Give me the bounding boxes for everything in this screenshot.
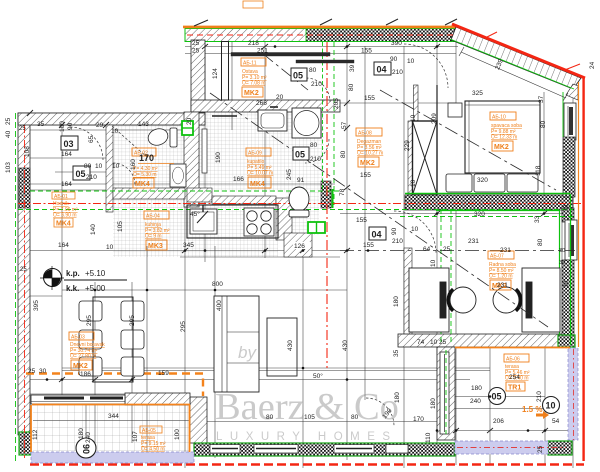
svg-text:112: 112 (32, 429, 39, 440)
svg-text:25: 25 (443, 246, 451, 253)
svg-text:229: 229 (404, 140, 411, 151)
svg-text:35: 35 (37, 121, 45, 128)
svg-text:Baerz & Co: Baerz & Co (215, 386, 399, 428)
svg-text:155: 155 (356, 217, 367, 224)
svg-text:180: 180 (394, 392, 401, 403)
svg-text:+5.10: +5.10 (85, 269, 106, 278)
svg-text:206: 206 (493, 418, 504, 425)
svg-text:АБ-03: АБ-03 (71, 335, 85, 341)
svg-text:80: 80 (340, 150, 347, 158)
svg-text:10: 10 (430, 339, 438, 346)
svg-text:344: 344 (108, 413, 119, 420)
svg-text:390: 390 (391, 40, 402, 47)
svg-text:80: 80 (351, 414, 359, 421)
svg-text:105: 105 (304, 414, 315, 421)
svg-text:100: 100 (59, 121, 66, 132)
svg-text:210: 210 (310, 156, 321, 163)
svg-text:30: 30 (563, 280, 570, 288)
svg-text:155: 155 (364, 95, 375, 102)
svg-text:100: 100 (174, 429, 181, 440)
svg-text:O= 10.07 m: O= 10.07 m (247, 171, 273, 177)
svg-text:АБ-05: АБ-05 (142, 428, 156, 434)
svg-text:АБ-09: АБ-09 (248, 151, 262, 157)
svg-text:MK2: MK2 (360, 160, 375, 167)
svg-text:25: 25 (537, 445, 544, 453)
svg-text:209: 209 (431, 113, 438, 124)
svg-text:45°: 45° (190, 210, 200, 218)
svg-text:04: 04 (372, 230, 382, 240)
svg-text:103: 103 (5, 162, 12, 173)
svg-text:MK2: MK2 (244, 90, 259, 97)
svg-text:80: 80 (540, 120, 547, 128)
svg-text:54: 54 (552, 418, 560, 425)
svg-text:25: 25 (192, 48, 200, 55)
svg-text:MK4: MK4 (250, 181, 265, 188)
svg-text:90: 90 (391, 227, 398, 235)
svg-text:400: 400 (216, 300, 223, 311)
svg-text:10: 10 (106, 244, 114, 251)
svg-text:25: 25 (439, 339, 447, 346)
svg-text:35: 35 (393, 349, 400, 357)
svg-text:04: 04 (377, 65, 387, 75)
svg-text:30: 30 (563, 204, 570, 212)
svg-text:430: 430 (287, 340, 294, 351)
svg-text:TR1: TR1 (508, 385, 521, 392)
svg-text:180: 180 (78, 428, 85, 439)
svg-text:05: 05 (293, 71, 303, 81)
svg-text:30: 30 (559, 248, 565, 254)
svg-text:АБ-06: АБ-06 (506, 357, 520, 363)
svg-text:80: 80 (84, 163, 92, 170)
svg-text:143: 143 (138, 121, 149, 128)
svg-text:by: by (238, 343, 257, 362)
svg-text:210: 210 (536, 391, 543, 402)
svg-text:O= 12.33 m: O= 12.33 m (491, 135, 517, 141)
svg-text:АБ-10: АБ-10 (492, 115, 506, 121)
svg-text:210: 210 (86, 174, 97, 181)
svg-text:159: 159 (158, 370, 169, 377)
svg-text:74: 74 (417, 339, 425, 346)
svg-text:MK3: MK3 (148, 243, 163, 250)
svg-text:O= 9 m: O= 9 m (145, 234, 162, 240)
svg-text:АБ-01: АБ-01 (54, 194, 68, 200)
svg-text:33: 33 (534, 215, 541, 223)
svg-text:180: 180 (430, 398, 437, 409)
svg-text:25: 25 (19, 126, 26, 132)
svg-text:1.5 %: 1.5 % (522, 405, 542, 414)
svg-text:20: 20 (186, 117, 193, 125)
svg-text:LUXURY HOMES: LUXURY HOMES (216, 431, 398, 443)
svg-text:65: 65 (88, 135, 95, 143)
svg-text:231: 231 (468, 238, 479, 245)
svg-text:АБ-11: АБ-11 (243, 61, 257, 67)
svg-text:251: 251 (257, 48, 268, 55)
svg-text:10: 10 (546, 401, 556, 411)
svg-text:105: 105 (117, 221, 124, 232)
svg-text:O= 1.20 m: O= 1.20 m (489, 274, 512, 280)
svg-text:50°: 50° (313, 372, 323, 380)
svg-text:240: 240 (85, 432, 92, 443)
svg-text:MK2: MK2 (73, 363, 88, 370)
svg-text:155: 155 (363, 242, 374, 249)
svg-text:O= 7.08 m: O= 7.08 m (242, 81, 265, 87)
svg-text:320: 320 (474, 211, 485, 218)
svg-text:124: 124 (212, 68, 219, 79)
svg-text:320: 320 (477, 177, 488, 184)
svg-text:АБ-04: АБ-04 (146, 214, 160, 220)
svg-text:O= 5.30 m: O= 5.30 m (133, 172, 156, 178)
svg-text:80: 80 (309, 67, 317, 74)
svg-text:25: 25 (28, 368, 36, 375)
svg-text:25: 25 (20, 267, 27, 273)
svg-text:29: 29 (96, 122, 104, 129)
svg-text:06: 06 (82, 444, 92, 454)
svg-text:266: 266 (256, 100, 267, 107)
svg-text:164: 164 (61, 151, 72, 158)
svg-text:64: 64 (423, 246, 431, 253)
svg-text:205: 205 (333, 98, 340, 109)
svg-text:91: 91 (297, 177, 305, 184)
svg-text:10: 10 (111, 128, 119, 135)
svg-text:170: 170 (139, 153, 154, 163)
svg-text:164: 164 (61, 181, 72, 188)
svg-text:254: 254 (509, 374, 520, 381)
svg-text:АБ-07: АБ-07 (490, 254, 504, 260)
svg-text:MK4: MK4 (135, 181, 150, 188)
svg-text:80: 80 (310, 142, 318, 149)
svg-text:10: 10 (407, 58, 415, 65)
svg-text:78: 78 (339, 188, 346, 196)
svg-text:20: 20 (276, 94, 284, 101)
svg-text:10: 10 (410, 179, 417, 187)
svg-text:110: 110 (425, 432, 432, 443)
svg-text:155: 155 (360, 172, 371, 179)
svg-text:107: 107 (132, 431, 139, 442)
svg-text:05: 05 (492, 392, 502, 402)
svg-text:140: 140 (90, 224, 97, 235)
svg-text:295: 295 (129, 315, 136, 326)
svg-text:170: 170 (413, 416, 424, 423)
svg-text:37: 37 (538, 95, 545, 103)
svg-text:k.p.: k.p. (66, 269, 80, 278)
svg-text:295: 295 (86, 315, 93, 326)
svg-text:+5.00: +5.00 (85, 284, 106, 293)
svg-text:O= 4.50 m: O= 4.50 m (141, 447, 164, 453)
svg-text:118: 118 (535, 165, 542, 176)
svg-text:24: 24 (589, 61, 596, 69)
svg-text:30: 30 (559, 260, 565, 266)
svg-text:160: 160 (130, 159, 137, 170)
svg-text:MK4: MK4 (56, 221, 71, 228)
svg-text:345: 345 (183, 242, 194, 249)
svg-text:164: 164 (58, 242, 69, 249)
svg-text:190: 190 (215, 152, 222, 163)
svg-text:108: 108 (24, 146, 31, 157)
svg-text:80: 80 (348, 83, 355, 91)
svg-text:218: 218 (248, 40, 259, 47)
svg-text:186: 186 (80, 371, 91, 378)
svg-text:O= 27.80 m: O= 27.80 m (70, 354, 96, 360)
svg-text:180: 180 (393, 296, 400, 307)
svg-text:25: 25 (5, 117, 12, 125)
svg-text:155: 155 (361, 48, 372, 55)
svg-text:325: 325 (472, 90, 483, 97)
svg-text:10: 10 (430, 259, 437, 267)
svg-text:39: 39 (349, 64, 356, 72)
svg-text:40: 40 (5, 130, 12, 138)
svg-text:90: 90 (67, 122, 74, 130)
svg-text:57: 57 (341, 121, 348, 129)
svg-text:90: 90 (390, 56, 398, 63)
svg-text:180: 180 (471, 385, 482, 392)
svg-text:O= 10.27 m: O= 10.27 m (357, 151, 383, 157)
svg-text:03: 03 (64, 139, 74, 149)
svg-text:10: 10 (95, 163, 103, 170)
svg-text:395: 395 (33, 300, 40, 311)
svg-text:231: 231 (500, 247, 511, 254)
svg-text:240: 240 (470, 398, 481, 405)
svg-text:245: 245 (286, 169, 293, 180)
svg-text:210: 210 (311, 81, 322, 88)
svg-text:166: 166 (233, 176, 244, 183)
svg-text:126: 126 (294, 243, 305, 250)
svg-text:80: 80 (266, 414, 274, 421)
svg-text:k.k.: k.k. (66, 284, 79, 293)
svg-text:MK2: MK2 (494, 144, 509, 151)
svg-text:05: 05 (295, 150, 305, 160)
svg-text:05: 05 (76, 169, 86, 179)
svg-text:231: 231 (497, 282, 508, 289)
svg-text:АБ-08: АБ-08 (358, 131, 372, 137)
svg-text:800: 800 (212, 281, 223, 288)
svg-text:210: 210 (392, 238, 403, 245)
svg-text:30: 30 (39, 368, 47, 375)
svg-text:80: 80 (537, 238, 544, 246)
svg-text:10: 10 (112, 163, 120, 170)
svg-text:295: 295 (180, 321, 187, 332)
svg-text:10: 10 (410, 114, 417, 122)
svg-text:430: 430 (342, 340, 349, 351)
svg-text:10: 10 (411, 226, 419, 233)
svg-text:25: 25 (192, 40, 200, 47)
svg-text:210: 210 (392, 69, 403, 76)
